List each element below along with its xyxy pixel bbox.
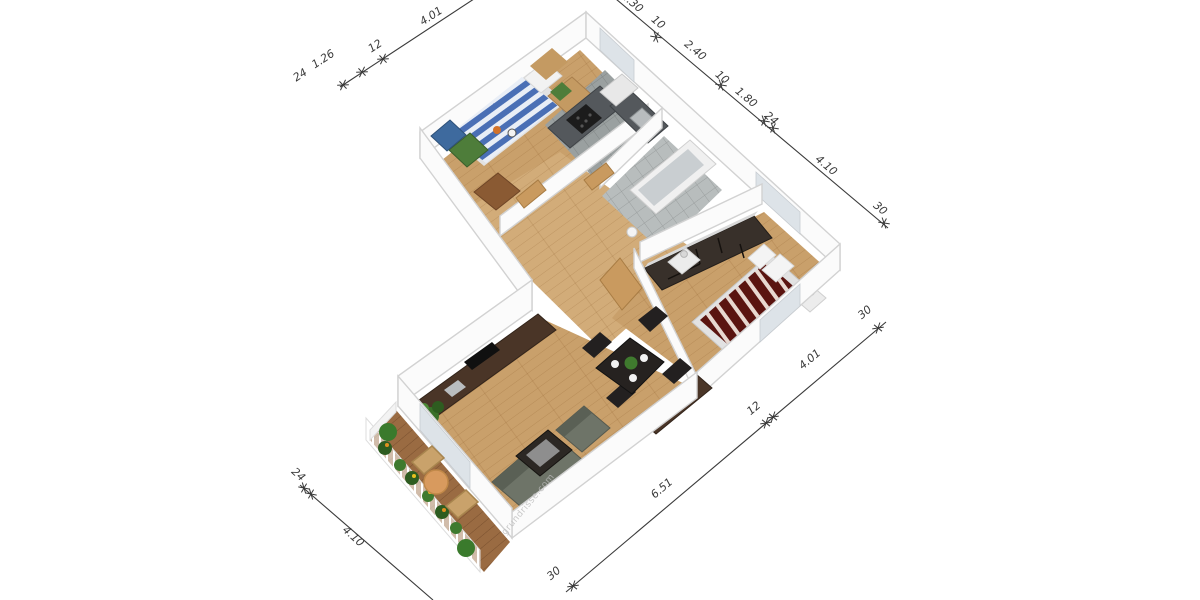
lamp-left [681,251,688,258]
dining-plant [625,357,638,370]
patio-table [424,470,448,494]
plate [611,360,619,368]
dimension-label: 12 [366,37,385,56]
bathroom-sink [627,227,637,237]
dimension-label: 1.26 [309,47,337,71]
dimension-line-top-left: 24 1.26 12 4.01 [291,0,480,92]
plate [629,374,637,382]
basketball [493,126,501,134]
floor-plan-canvas: grundrisse.com 24 1.26 12 4.01 [0,0,1200,600]
dimension-label: 4.01 [417,4,445,28]
dimension-label: 30 [871,199,890,218]
dimension-label: 12 [744,399,763,418]
dimension-label: 30 [544,564,563,583]
dimension-label: 4.10 [340,523,367,549]
dimension-label: 2.40 [682,37,709,63]
dimension-label: 4.01 [796,346,823,372]
dimension-label: 24 [291,66,310,85]
dimension-label: 4.10 [813,152,840,178]
dimension-label: 1.80 [733,84,760,110]
plate [640,354,648,362]
floor-plan-page: grundrisse.com 24 1.26 12 4.01 [0,0,1200,600]
soccer-ball [508,129,516,137]
dimension-label: 24 [289,465,308,484]
dimension-label: 30 [855,303,874,322]
dimension-label: 6.51 [648,475,675,501]
dimension-label: 24 [762,109,781,128]
